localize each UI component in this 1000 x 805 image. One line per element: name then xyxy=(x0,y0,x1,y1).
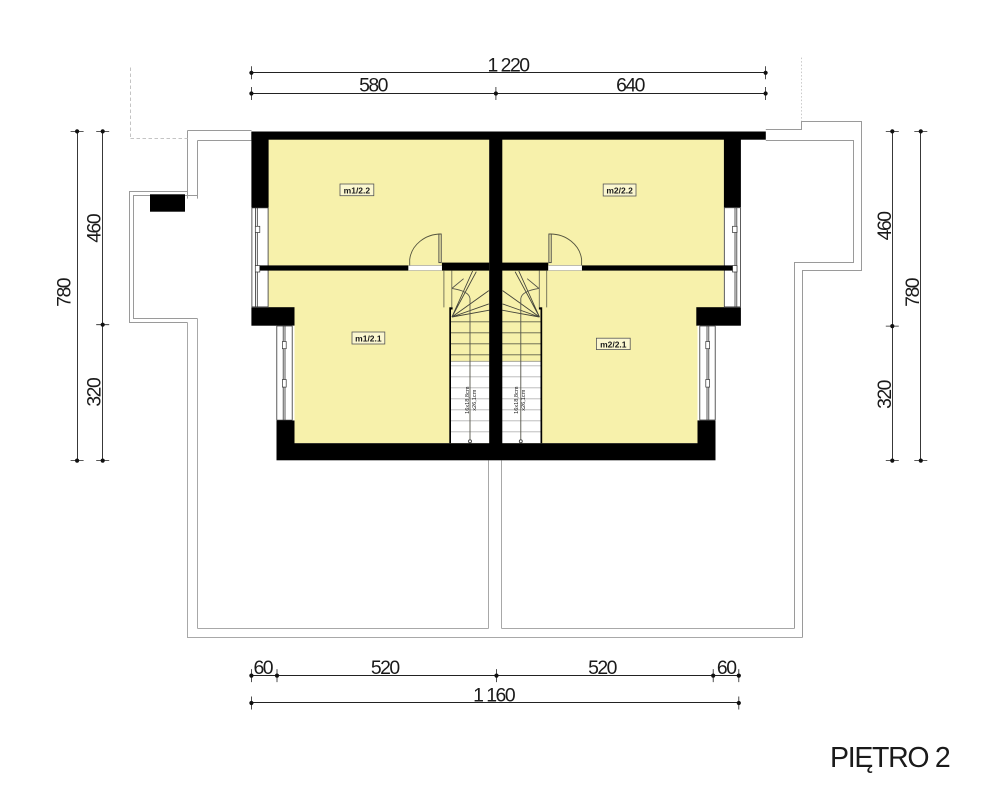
svg-text:m2/2.2: m2/2.2 xyxy=(606,185,633,195)
svg-text:m1/2.1: m1/2.1 xyxy=(355,333,382,343)
svg-text:520: 520 xyxy=(371,657,401,679)
svg-text:580: 580 xyxy=(359,75,389,97)
svg-text:780: 780 xyxy=(53,277,75,307)
svg-text:x26,1cm: x26,1cm xyxy=(521,389,527,410)
svg-text:60: 60 xyxy=(717,657,737,679)
svg-text:320: 320 xyxy=(84,377,106,407)
svg-text:1 160: 1 160 xyxy=(473,684,516,706)
svg-text:1 220: 1 220 xyxy=(487,55,530,77)
svg-text:320: 320 xyxy=(874,379,896,409)
svg-text:PIĘTRO 2: PIĘTRO 2 xyxy=(830,742,950,774)
svg-text:780: 780 xyxy=(902,277,924,307)
svg-text:460: 460 xyxy=(874,211,896,241)
svg-text:m2/2.1: m2/2.1 xyxy=(600,339,627,349)
svg-text:16x18,8cm: 16x18,8cm xyxy=(465,386,471,414)
svg-text:640: 640 xyxy=(616,75,646,97)
svg-text:m1/2.2: m1/2.2 xyxy=(344,185,371,195)
svg-text:460: 460 xyxy=(84,213,106,243)
svg-text:16x18,8cm: 16x18,8cm xyxy=(514,386,520,414)
svg-text:x26,1cm: x26,1cm xyxy=(472,389,478,410)
svg-text:520: 520 xyxy=(588,657,618,679)
svg-text:60: 60 xyxy=(254,657,274,679)
